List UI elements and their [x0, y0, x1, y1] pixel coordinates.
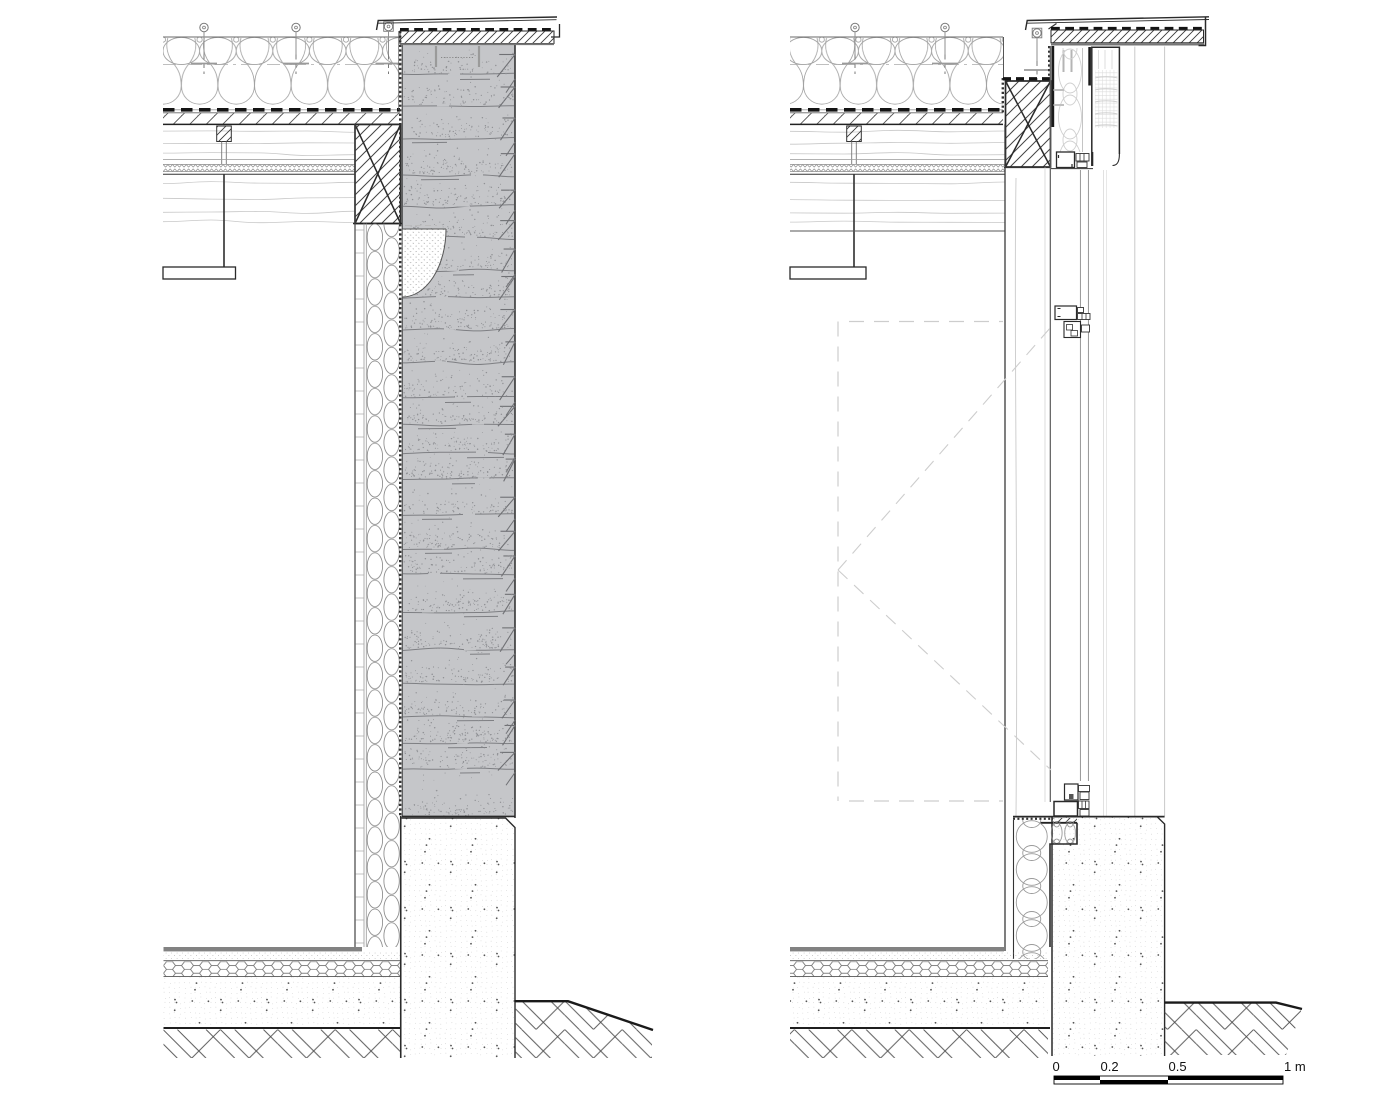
svg-text:1 m: 1 m: [1284, 1059, 1306, 1074]
svg-text:0.2: 0.2: [1101, 1059, 1119, 1074]
svg-text:0: 0: [1053, 1059, 1060, 1074]
svg-text:0.5: 0.5: [1169, 1059, 1187, 1074]
